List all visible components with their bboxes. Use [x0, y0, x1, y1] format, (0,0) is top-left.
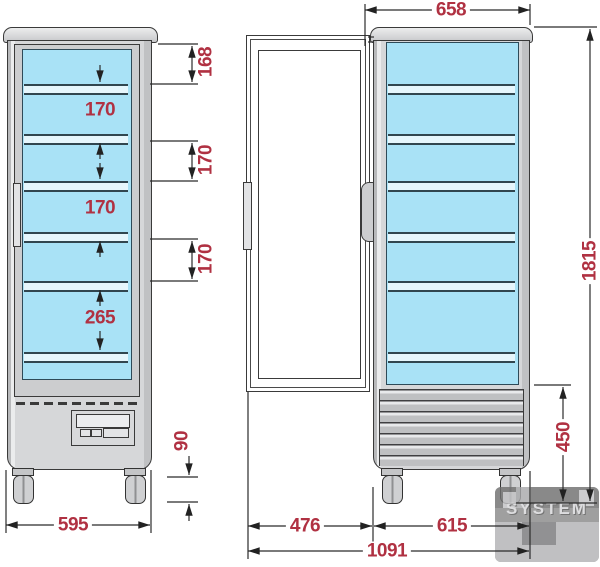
dim-label-170: 170	[197, 145, 216, 175]
dim-label-450: 450	[555, 419, 574, 455]
shelf-line	[388, 232, 515, 243]
shelf-line	[388, 84, 515, 95]
technical-drawing-canvas: 168 170 170 170 170 265 90 595 658 1815 …	[0, 0, 600, 567]
shelf-line	[24, 232, 128, 243]
dim-label-168: 168	[197, 47, 216, 77]
dim-label-476: 476	[286, 517, 324, 536]
compressor-vent-louvers	[379, 389, 524, 466]
watermark-text: SYSTEM	[495, 499, 599, 519]
dim-label-170: 170	[85, 199, 115, 218]
shelf-line	[24, 84, 128, 95]
front-door-handle	[13, 183, 21, 247]
caster-wheel	[10, 468, 36, 505]
watermark-system-logo: SYSTEM	[495, 487, 599, 562]
open-door-handle	[243, 182, 252, 250]
shelf-line	[24, 181, 128, 192]
shelf-line	[388, 281, 515, 292]
dim-label-595: 595	[54, 516, 92, 535]
dim-label-1091: 1091	[363, 542, 411, 561]
open-door-glass	[258, 50, 361, 379]
dim-label-90: 90	[173, 431, 192, 451]
control-button	[80, 429, 91, 437]
shelf-line	[24, 281, 128, 292]
dim-label-170: 170	[85, 101, 115, 120]
dim-label-658: 658	[432, 1, 470, 20]
front-glass-door	[22, 49, 132, 380]
shelf-line	[24, 352, 128, 363]
dim-label-1815: 1815	[581, 238, 600, 284]
dim-label-265: 265	[85, 309, 115, 328]
watermark-notch	[522, 522, 556, 545]
shelf-line	[388, 181, 515, 192]
front-vent-slots	[16, 402, 142, 405]
caster-wheel	[122, 468, 148, 505]
watermark-bottom-band	[495, 522, 599, 562]
caster-wheel	[379, 468, 405, 505]
control-display	[76, 414, 130, 428]
control-button	[91, 429, 102, 437]
shelf-line	[388, 134, 515, 145]
shelf-line	[388, 352, 515, 363]
dim-label-170: 170	[197, 244, 216, 274]
shelf-line	[24, 134, 128, 145]
control-button-wide	[103, 428, 129, 438]
dim-label-615: 615	[433, 517, 471, 536]
